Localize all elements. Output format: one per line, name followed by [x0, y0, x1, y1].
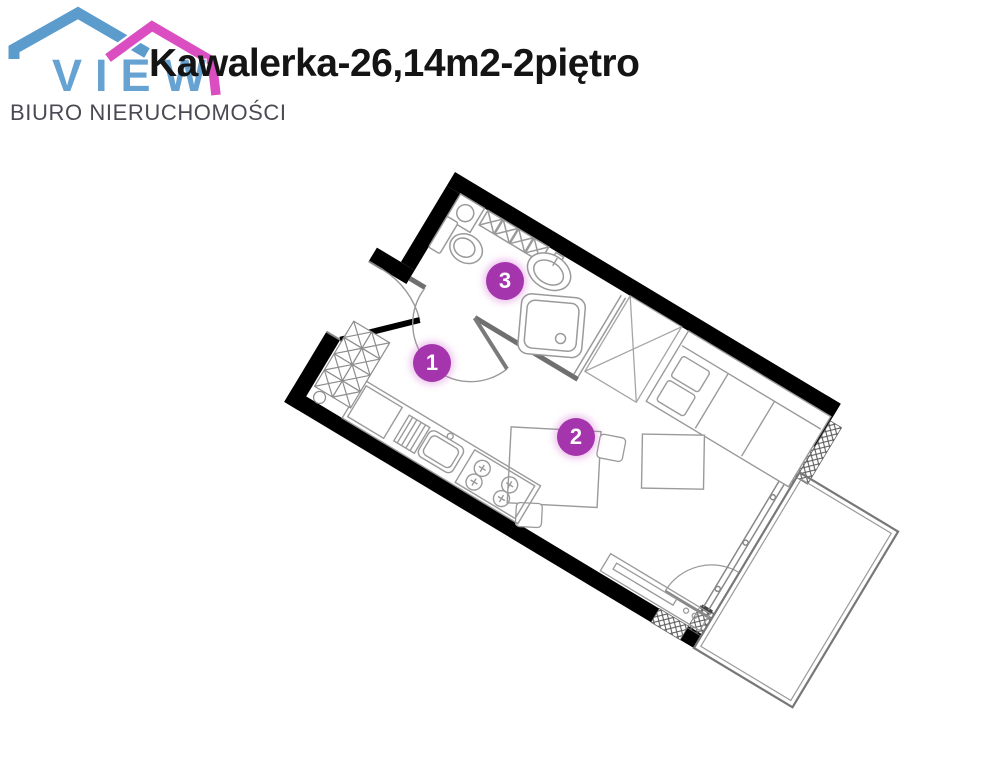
balcony	[694, 472, 898, 707]
bathroom-door	[391, 288, 521, 402]
room-marker-living-room: 2	[557, 418, 595, 456]
room-marker-number: 2	[570, 424, 582, 450]
room-marker-number: 3	[499, 268, 511, 294]
plan-rotated-group	[284, 158, 939, 708]
room-marker-bathroom: 3	[486, 262, 524, 300]
room-marker-number: 1	[426, 350, 438, 376]
page-title: Kawalerka-26,14m2-2piętro	[149, 42, 639, 86]
shower-icon	[517, 293, 586, 358]
brand-subtitle: BIURO NIERUCHOMOŚCI	[10, 100, 287, 126]
room-marker-hall: 1	[413, 344, 451, 382]
chair-icon	[596, 434, 626, 463]
sliding-balcony-door	[700, 475, 791, 615]
ottoman-icon	[641, 434, 704, 489]
